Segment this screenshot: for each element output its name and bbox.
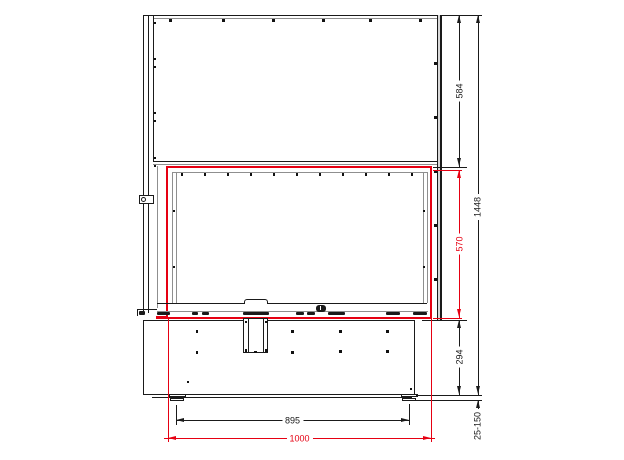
arrowhead <box>423 436 431 440</box>
ext-foot-right <box>409 404 410 425</box>
dim-label-294: 294 <box>455 346 464 367</box>
hood-left-edge <box>153 15 154 162</box>
base-screw <box>339 330 342 333</box>
frame-screw-tick <box>388 173 390 176</box>
frame-screw-tick <box>173 266 175 268</box>
screw-dot <box>154 58 156 60</box>
base-screw <box>410 388 412 390</box>
wall-tick <box>434 278 437 281</box>
frame-screw-tick <box>423 266 425 268</box>
arrowhead <box>476 386 480 394</box>
dim-label-1448: 1448 <box>474 194 483 220</box>
arrowhead <box>457 170 461 178</box>
arrowhead <box>176 418 184 422</box>
screw-dot <box>272 19 275 22</box>
flange-foot-mark <box>139 311 145 315</box>
technical-drawing: 584 570 294 1448 25-150 895 1000 <box>0 0 624 460</box>
screw-dot <box>222 19 225 22</box>
frame-screw-tick <box>173 210 175 212</box>
ext-glass-top <box>433 167 467 168</box>
side-glass-edge-line <box>157 166 158 308</box>
bracket-screw <box>254 351 257 354</box>
arrowhead <box>457 309 461 317</box>
frame-screw-tick <box>250 173 252 176</box>
firebox-floor-line <box>157 303 427 304</box>
left-flange-outer-line <box>143 15 144 313</box>
screw-dot <box>419 19 422 22</box>
screw-dot <box>154 120 156 122</box>
frame-screw-tick <box>204 173 206 176</box>
dim-label-895: 895 <box>282 415 303 426</box>
arrowhead <box>168 436 176 440</box>
sill-fitting <box>386 312 400 315</box>
arrowhead <box>457 386 461 394</box>
left-flange-inner-line <box>148 15 149 313</box>
bracket-screw <box>265 349 268 352</box>
frame-screw-tick <box>342 173 344 176</box>
glass-opening-outline <box>166 166 433 320</box>
unit-top-edge <box>143 15 441 16</box>
flange-foot-step-edge <box>137 309 138 317</box>
sill-top-line <box>157 311 428 312</box>
latch-knob <box>141 197 146 202</box>
base-screw <box>386 330 389 333</box>
sill-fitting <box>202 312 209 315</box>
sill-fitting <box>157 312 170 315</box>
ext-glass-right-red <box>431 319 432 442</box>
sill-fitting <box>413 312 427 315</box>
glass-frame-inner-right-a <box>423 172 424 303</box>
wall-tick <box>434 224 437 227</box>
screw-dot <box>169 19 172 22</box>
flange-foot-step <box>137 309 158 310</box>
glass-frame-inner-left-a <box>172 172 173 303</box>
frame-screw-tick <box>319 173 321 176</box>
base-screw <box>196 330 199 333</box>
frame-screw-tick <box>411 173 413 176</box>
base-screw <box>291 330 294 333</box>
base-box <box>143 320 415 395</box>
screw-dot <box>154 22 157 25</box>
frame-screw-tick <box>296 173 298 176</box>
sill-fitting <box>243 312 269 315</box>
arrowhead <box>401 418 409 422</box>
frame-screw-tick <box>273 173 275 176</box>
ext-base-bottom <box>416 395 482 396</box>
hood-top-inner-line <box>153 18 437 19</box>
dim-label-1000: 1000 <box>286 433 312 444</box>
base-bottom-plate-line <box>152 397 406 398</box>
bracket-screw <box>245 321 248 324</box>
arrowhead <box>457 15 461 23</box>
glass-frame-inner-left-b <box>176 172 177 303</box>
screw-dot <box>322 19 325 22</box>
bracket-screw <box>245 349 248 352</box>
frame-screw-tick <box>423 210 425 212</box>
wall-tick <box>434 62 437 65</box>
ext-glass-left-red <box>168 319 169 442</box>
screw-dot <box>154 112 156 114</box>
base-screw <box>196 351 199 354</box>
frame-screw-tick <box>227 173 229 176</box>
glass-frame-inner-right-b <box>427 172 428 303</box>
bracket-screw <box>265 321 268 324</box>
hood-bottom-inner-line <box>153 164 437 165</box>
base-screw <box>291 351 294 354</box>
knob-slit <box>320 306 321 310</box>
dim-label-25-150: 25-150 <box>474 409 483 443</box>
screw-dot <box>154 165 156 167</box>
sill-fitting <box>296 312 304 315</box>
ext-glass-bottom-red <box>433 318 462 319</box>
base-screw <box>386 350 389 353</box>
ext-floor <box>409 400 482 401</box>
leveling-foot-left-pad <box>170 398 184 401</box>
arrowhead <box>457 158 461 166</box>
arrowhead <box>457 320 461 328</box>
hood-bottom-edge <box>153 161 441 162</box>
dim-label-584: 584 <box>455 80 464 101</box>
wall-tick <box>434 116 437 119</box>
arrowhead <box>476 15 480 23</box>
base-screw <box>339 350 342 353</box>
center-bracket-inner-left <box>248 319 249 352</box>
frame-screw-tick <box>365 173 367 176</box>
floor-notch <box>244 299 268 304</box>
sill-fitting <box>192 312 198 315</box>
arrowhead <box>476 400 480 408</box>
dim-label-570: 570 <box>455 233 464 254</box>
center-bracket-inner-right <box>263 319 264 352</box>
screw-dot <box>154 157 156 159</box>
sill-fitting <box>307 312 315 315</box>
base-screw <box>187 381 189 383</box>
screw-dot <box>369 19 372 22</box>
sill-fitting <box>328 312 345 315</box>
frame-screw-tick <box>181 173 183 176</box>
screw-dot <box>154 66 156 68</box>
